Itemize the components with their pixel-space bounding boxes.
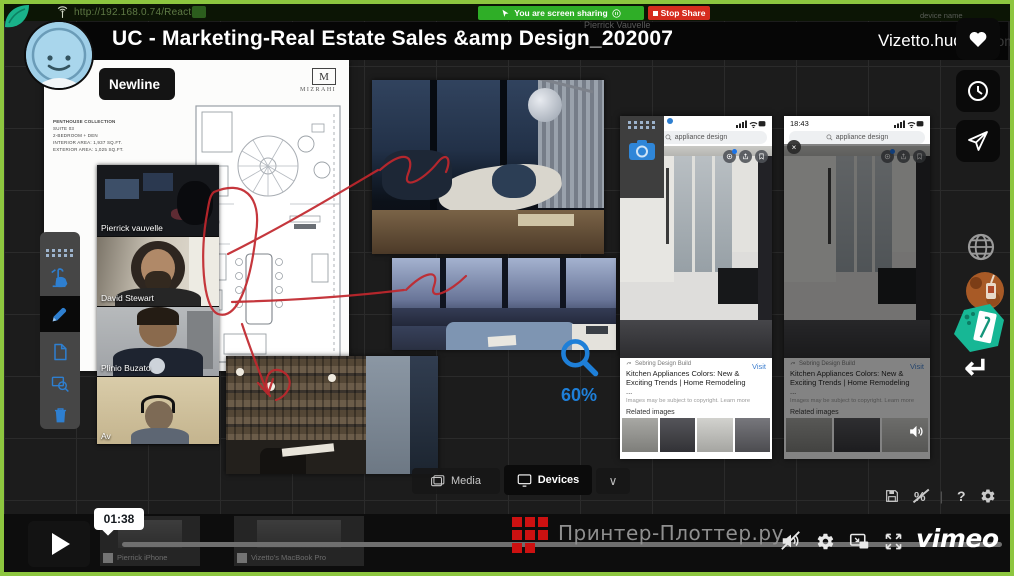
pip-button[interactable] xyxy=(846,528,872,554)
volume-button[interactable] xyxy=(778,528,804,554)
result-source: Sebring Design Build xyxy=(635,361,691,367)
phone-search-bar[interactable]: appliance design xyxy=(789,131,925,144)
canvas-corner-controls: % | ? xyxy=(884,483,1006,509)
participant-name: Av xyxy=(101,431,111,441)
books-stack xyxy=(518,214,574,226)
globe-lamp xyxy=(528,88,562,122)
cabinet-mullion xyxy=(712,156,715,272)
microwave xyxy=(718,268,758,304)
collapse-tabs-button[interactable]: ∨ xyxy=(596,468,630,494)
stop-icon xyxy=(653,11,658,16)
person-silhouette xyxy=(177,181,213,225)
newline-device-tag: Newline xyxy=(99,68,175,100)
device-tile-label: Vizetto's MacBook Pro xyxy=(251,553,326,562)
phone-mirror-left[interactable]: appliance design Sebring Design Build xyxy=(620,116,772,459)
fridge xyxy=(758,156,772,326)
shelf-light xyxy=(236,368,244,376)
user-avatar[interactable] xyxy=(26,22,92,88)
device-icon xyxy=(103,553,113,563)
page-tool-button[interactable] xyxy=(40,336,80,368)
device-icon xyxy=(237,553,247,563)
cabinet xyxy=(366,356,410,474)
participant-name: Plinio Buzato xyxy=(101,363,151,373)
reactiv-leaf-icon xyxy=(4,4,33,38)
sharing-banner-label: You are screen sharing xyxy=(514,8,607,18)
presenter-name: Pierrick Vauvelle xyxy=(584,20,650,30)
glass-cabinet xyxy=(674,156,732,272)
device-tile[interactable]: Vizetto's MacBook Pro xyxy=(234,516,364,566)
participant-tile[interactable]: Av xyxy=(97,377,219,445)
pen-icon xyxy=(49,303,71,325)
counter xyxy=(620,320,772,358)
spec-line: INTERIOR AREA: 1,937 SQ.FT. xyxy=(53,139,124,146)
trash-icon xyxy=(51,405,70,424)
heart-icon xyxy=(966,27,990,51)
person-hair xyxy=(137,307,179,325)
thumbnail[interactable] xyxy=(622,418,658,452)
participant-tile[interactable]: Pierrick vauvelle xyxy=(97,165,219,237)
share-button[interactable] xyxy=(739,150,752,163)
city-window xyxy=(410,356,438,474)
device-tile-label: Pierrick iPhone xyxy=(117,553,167,562)
bedroom-photo[interactable] xyxy=(372,80,604,254)
clock-icon xyxy=(966,79,990,103)
gear-icon xyxy=(816,532,835,551)
help-button[interactable]: ? xyxy=(957,488,966,504)
zoom-indicator: 60% xyxy=(549,335,609,406)
search-icon xyxy=(665,134,672,141)
delete-tool-button[interactable] xyxy=(40,398,80,430)
person-body xyxy=(131,428,189,445)
visit-link[interactable]: Visit xyxy=(752,362,766,371)
picture-in-picture-icon xyxy=(849,531,870,552)
status-icons xyxy=(736,119,766,128)
participant-name: Pierrick vauvelle xyxy=(101,223,163,233)
fullscreen-button[interactable] xyxy=(880,528,906,554)
dim-overlay xyxy=(784,144,930,459)
browser-button[interactable] xyxy=(962,228,1000,266)
volume-muted-icon xyxy=(780,530,802,552)
reactiv-logo-icon[interactable] xyxy=(950,302,1006,354)
tab-devices[interactable]: Devices xyxy=(504,465,592,495)
camera-side-panel xyxy=(620,116,664,198)
shelf-light xyxy=(328,374,336,382)
related-thumbnails[interactable] xyxy=(620,418,772,452)
device-name-label: device name xyxy=(920,11,963,20)
participant-tile[interactable]: Plinio Buzato xyxy=(97,307,219,377)
ink-opacity-icon[interactable]: % xyxy=(914,489,926,504)
watermark-logo xyxy=(512,517,550,553)
search-query: appliance design xyxy=(675,134,728,141)
bookmark-button[interactable] xyxy=(755,150,768,163)
shelf-light xyxy=(266,382,275,391)
close-icon: × xyxy=(792,143,797,152)
touch-hand-icon xyxy=(49,267,71,289)
play-button[interactable] xyxy=(28,521,90,567)
recording-dot xyxy=(667,118,673,124)
settings-gear-icon[interactable] xyxy=(980,488,996,504)
drag-dots-icon[interactable] xyxy=(628,121,656,129)
dark-pillow xyxy=(382,150,452,200)
status-icons xyxy=(894,119,924,128)
extension-badge[interactable] xyxy=(192,6,206,18)
page-icon xyxy=(50,342,70,362)
audio-unmute-button[interactable] xyxy=(908,423,925,445)
copyright-note: Images may be subject to copyright. Lear… xyxy=(626,398,766,404)
zoom-level-value: 60% xyxy=(549,385,609,406)
fullscreen-icon xyxy=(883,531,904,552)
player-settings-button[interactable] xyxy=(812,528,838,554)
search-icon xyxy=(826,134,833,141)
brand-name: MIZRAHI xyxy=(300,87,336,93)
library-photo[interactable] xyxy=(226,356,438,474)
stop-share-label: Stop Share xyxy=(661,8,706,18)
thumbnail[interactable] xyxy=(735,418,771,452)
participant-tile[interactable]: David Stewart xyxy=(97,237,219,307)
lens-button[interactable] xyxy=(723,150,736,163)
spec-line: 2-BEDROOM + DEN xyxy=(53,132,124,139)
person-face xyxy=(145,401,173,431)
result-card[interactable]: Sebring Design Build Visit Kitchen Appli… xyxy=(620,358,772,406)
screenshot-frame: http://192.168.0.74/Reactiv/ You are scr… xyxy=(0,0,1014,576)
tab-devices-label: Devices xyxy=(538,474,580,486)
participant-name: David Stewart xyxy=(101,293,154,303)
play-icon xyxy=(52,533,70,555)
antenna-icon xyxy=(56,6,69,19)
devices-icon xyxy=(517,474,532,487)
screen-sharing-banner: You are screen sharing xyxy=(478,6,644,20)
status-time: 18:43 xyxy=(790,119,809,128)
monitor-glow xyxy=(105,179,139,199)
pillow xyxy=(492,164,536,198)
paper-plane-icon xyxy=(966,129,990,153)
divider: | xyxy=(940,489,943,504)
phone-mirror-right[interactable]: 18:43 appliance design xyxy=(784,116,930,459)
newline-label: Newline xyxy=(109,77,160,92)
result-source-row: Sebring Design Build xyxy=(626,361,766,367)
spec-line: SUITE 03 xyxy=(53,125,124,132)
return-button[interactable]: ↵ xyxy=(954,352,1000,386)
page-title: UC - Marketing-Real Estate Sales &amp De… xyxy=(112,27,673,51)
save-icon[interactable] xyxy=(884,488,900,504)
cabinet xyxy=(732,156,758,252)
watermark-text: Принтер-Плоттер.ру xyxy=(558,521,784,545)
touch-tool-button[interactable] xyxy=(40,262,80,294)
chevron-down-icon: ∨ xyxy=(609,474,618,488)
whiteboard-canvas: http://192.168.0.74/Reactiv/ You are scr… xyxy=(4,4,1010,572)
open-book xyxy=(488,335,517,347)
history-button[interactable] xyxy=(956,70,1000,112)
thumbnail[interactable] xyxy=(660,418,696,452)
source-icon xyxy=(626,361,632,367)
return-arrow-icon: ↵ xyxy=(964,354,989,384)
zoom-region-icon xyxy=(50,374,70,394)
book-spines xyxy=(226,356,366,444)
stop-share-button[interactable]: Stop Share xyxy=(648,6,710,20)
video-player-bar: Pierrick iPhone Vizetto's MacBook Pro 01… xyxy=(4,514,1010,572)
related-images-label: Related images xyxy=(620,406,772,418)
address-url[interactable]: http://192.168.0.74/Reactiv/ xyxy=(74,7,202,18)
cabinet-mullion xyxy=(692,156,695,272)
drag-dots-icon xyxy=(46,249,74,257)
title-bar: UC - Marketing-Real Estate Sales &amp De… xyxy=(56,22,1008,60)
shirt-logo xyxy=(149,358,165,374)
pause-share-icon[interactable] xyxy=(612,9,621,18)
cabinet-handle xyxy=(666,168,669,244)
favorite-button[interactable] xyxy=(956,18,1000,60)
suite-specs: PENTHOUSE COLLECTION SUITE 03 2-BEDROOM … xyxy=(53,118,124,153)
speaker-icon xyxy=(908,423,925,440)
magnifier-icon xyxy=(557,335,601,379)
pen-tool-button[interactable] xyxy=(40,296,80,332)
send-button[interactable] xyxy=(956,120,1000,162)
phone-status-bar: 18:43 xyxy=(784,116,930,130)
search-query: appliance design xyxy=(836,134,889,141)
result-title[interactable]: Kitchen Appliances Colors: New & Excitin… xyxy=(626,369,751,396)
tab-media[interactable]: Media xyxy=(412,468,500,494)
tray xyxy=(586,326,608,334)
annotation-toolbar xyxy=(40,232,80,429)
badge xyxy=(732,149,737,154)
media-icon xyxy=(431,475,445,487)
monitor-glow xyxy=(143,173,173,191)
close-button[interactable]: × xyxy=(787,140,801,154)
globe-icon xyxy=(965,231,997,263)
spec-line: EXTERIOR AREA: 1,025 SQ.FT. xyxy=(53,146,124,153)
participant-video-column: Pierrick vauvelle David Stewart Plinio B… xyxy=(97,165,219,445)
vimeo-logo[interactable]: vimeo xyxy=(916,524,999,553)
image-action-buttons xyxy=(723,150,768,163)
zoom-select-tool-button[interactable] xyxy=(40,368,80,400)
brand-monogram: M xyxy=(312,68,336,85)
thumbnail[interactable] xyxy=(697,418,733,452)
spec-line: PENTHOUSE COLLECTION xyxy=(53,118,124,125)
share-cursor-icon xyxy=(501,9,510,18)
camera-icon[interactable] xyxy=(628,139,656,161)
tab-media-label: Media xyxy=(451,475,481,487)
seek-time-tooltip: 01:38 xyxy=(94,508,144,530)
